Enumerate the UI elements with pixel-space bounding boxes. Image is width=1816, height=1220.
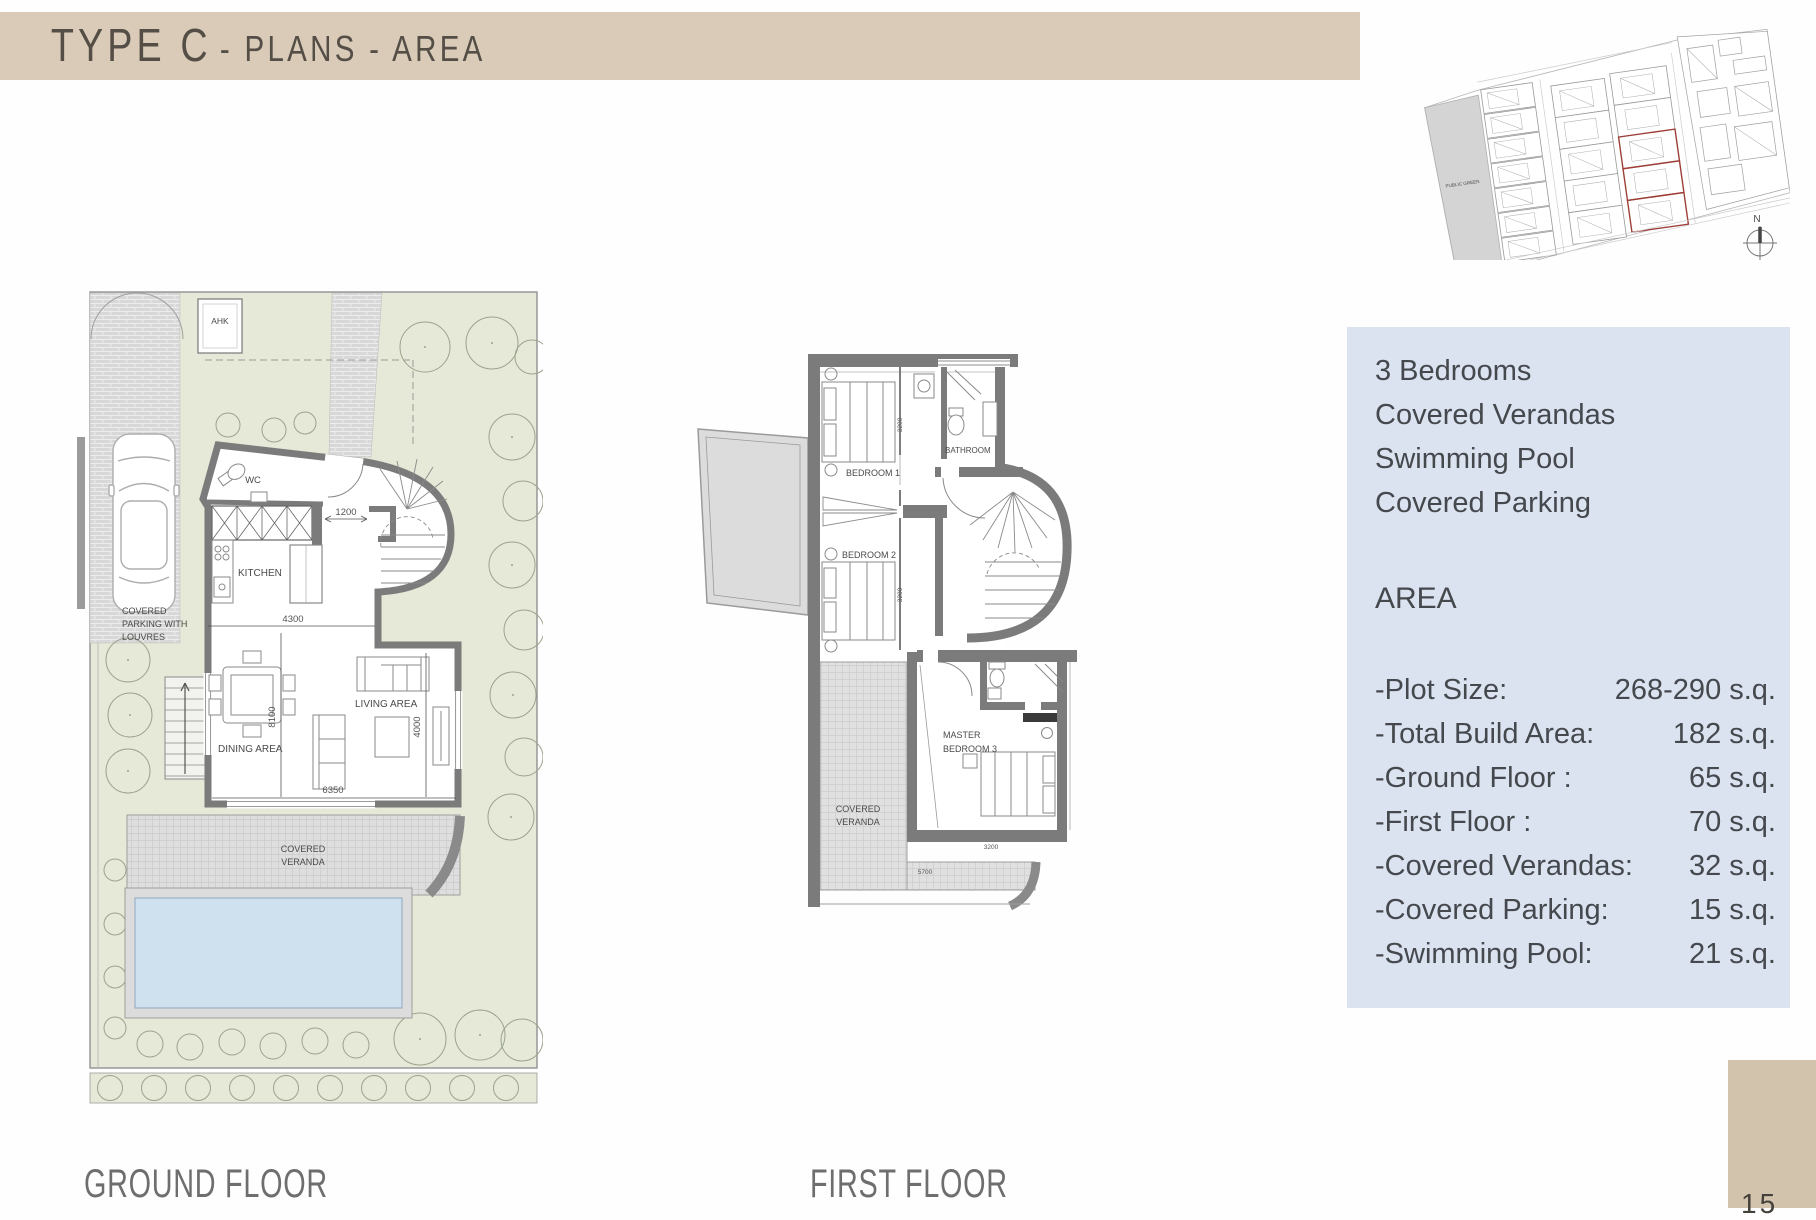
area-row-label: -Total Build Area:: [1375, 712, 1594, 756]
bedroom2-furniture: [822, 548, 895, 652]
page-title: TYPE C- PLANS - AREA: [0, 12, 486, 90]
area-row-label: -First Floor :: [1375, 800, 1531, 844]
area-row-parking: -Covered Parking: 15 s.q.: [1375, 888, 1776, 932]
living-label: LIVING AREA: [355, 699, 418, 710]
first-floor-plan: COVERED VERANDA: [695, 350, 1110, 960]
veranda-label-1: COVERED: [281, 844, 326, 854]
veranda1-label-2: VERANDA: [836, 817, 880, 827]
site-location-plan: PUBLIC GREEN: [1390, 15, 1790, 260]
street-verge: [90, 1073, 537, 1103]
area-row-value: 70 s.q.: [1689, 800, 1776, 844]
ahk-unit: AHK: [198, 299, 242, 353]
bathroom-label: BATHROOM: [945, 446, 991, 455]
master-wardrobe: [1023, 713, 1057, 722]
area-row-value: 65 s.q.: [1689, 756, 1776, 800]
dim-veranda-width: 5700: [918, 869, 933, 876]
parking-label-3: LOUVRES: [122, 632, 165, 642]
kitchen-louvre-band: [212, 506, 312, 540]
area-row-label: -Ground Floor :: [1375, 756, 1572, 800]
lower-roof: [698, 429, 808, 615]
feature-bedrooms: 3 Bedrooms: [1375, 349, 1776, 393]
title-main: TYPE C: [51, 19, 212, 71]
kitchen-label: KITCHEN: [238, 568, 282, 579]
ground-floor-plan: AHK: [75, 287, 543, 1107]
kitchen-wall-stub: [312, 506, 322, 545]
area-row-plot: -Plot Size: 268-290 s.q.: [1375, 668, 1776, 712]
covered-veranda-ground: COVERED VERANDA: [127, 815, 460, 895]
area-row-label: -Covered Verandas:: [1375, 844, 1633, 888]
dim-master: 3200: [984, 844, 999, 851]
master-label-1: MASTER: [943, 730, 981, 740]
page-number: 15: [1741, 1188, 1778, 1220]
area-row-verandas: -Covered Verandas: 32 s.q.: [1375, 844, 1776, 888]
veranda-label-2: VERANDA: [281, 857, 325, 867]
area-row-value: 32 s.q.: [1689, 844, 1776, 888]
area-row-label: -Swimming Pool:: [1375, 932, 1593, 976]
area-table: -Plot Size: 268-290 s.q. -Total Build Ar…: [1375, 668, 1776, 976]
north-label: N: [1753, 214, 1760, 225]
area-row-label: -Plot Size:: [1375, 668, 1507, 712]
dim-kitchen-width: 4300: [282, 614, 303, 625]
corner-accent-block: [1728, 1060, 1816, 1208]
area-row-total: -Total Build Area: 182 s.q.: [1375, 712, 1776, 756]
area-row-first: -First Floor : 70 s.q.: [1375, 800, 1776, 844]
area-heading: AREA: [1375, 577, 1776, 621]
dim-entrance: 1200: [335, 507, 356, 518]
bedroom2-label: BEDROOM 2: [842, 550, 896, 560]
feature-verandas: Covered Verandas: [1375, 393, 1776, 437]
site-plan-tilted-group: PUBLIC GREEN: [1420, 24, 1790, 260]
bedroom1-furniture: [822, 368, 895, 476]
area-row-label: -Covered Parking:: [1375, 888, 1609, 932]
dim-bed2: 3200: [897, 587, 904, 602]
dim-bed1: 3200: [897, 417, 904, 432]
laundry-unit: [914, 374, 934, 398]
bedroom1-label: BEDROOM 1: [846, 468, 900, 478]
area-row-pool: -Swimming Pool: 21 s.q.: [1375, 932, 1776, 976]
area-row-value: 182 s.q.: [1673, 712, 1776, 756]
dim-living-depth: 4000: [412, 716, 423, 737]
area-row-value: 268-290 s.q.: [1615, 668, 1776, 712]
wc-label: WC: [245, 475, 261, 486]
feature-parking: Covered Parking: [1375, 481, 1776, 525]
veranda1-label-1: COVERED: [836, 804, 881, 814]
area-row-value: 15 s.q.: [1689, 888, 1776, 932]
title-bar: TYPE C- PLANS - AREA: [0, 12, 1360, 80]
area-row-value: 21 s.q.: [1689, 932, 1776, 976]
master-label-2: BEDROOM 3: [943, 744, 997, 754]
ground-floor-caption: GROUND FLOOR: [84, 1162, 328, 1207]
title-sub: - PLANS - AREA: [220, 28, 486, 69]
ahk-label: AHK: [211, 316, 229, 326]
garden-stair: [165, 677, 205, 779]
parking-label-2: PARKING WITH: [122, 619, 187, 629]
parking-label-1: COVERED: [122, 606, 167, 616]
dining-label: DINING AREA: [218, 744, 283, 755]
boundary-wall: [77, 437, 85, 609]
feature-pool: Swimming Pool: [1375, 437, 1776, 481]
first-floor-caption: FIRST FLOOR: [810, 1162, 1008, 1207]
dim-depth: 8100: [267, 706, 278, 727]
info-box: 3 Bedrooms Covered Verandas Swimming Poo…: [1347, 327, 1790, 1008]
car: [109, 434, 179, 612]
north-compass-icon: N: [1743, 214, 1777, 260]
swimming-pool: [125, 888, 412, 1018]
area-row-ground: -Ground Floor : 65 s.q.: [1375, 756, 1776, 800]
dim-width: 6350: [322, 785, 343, 796]
